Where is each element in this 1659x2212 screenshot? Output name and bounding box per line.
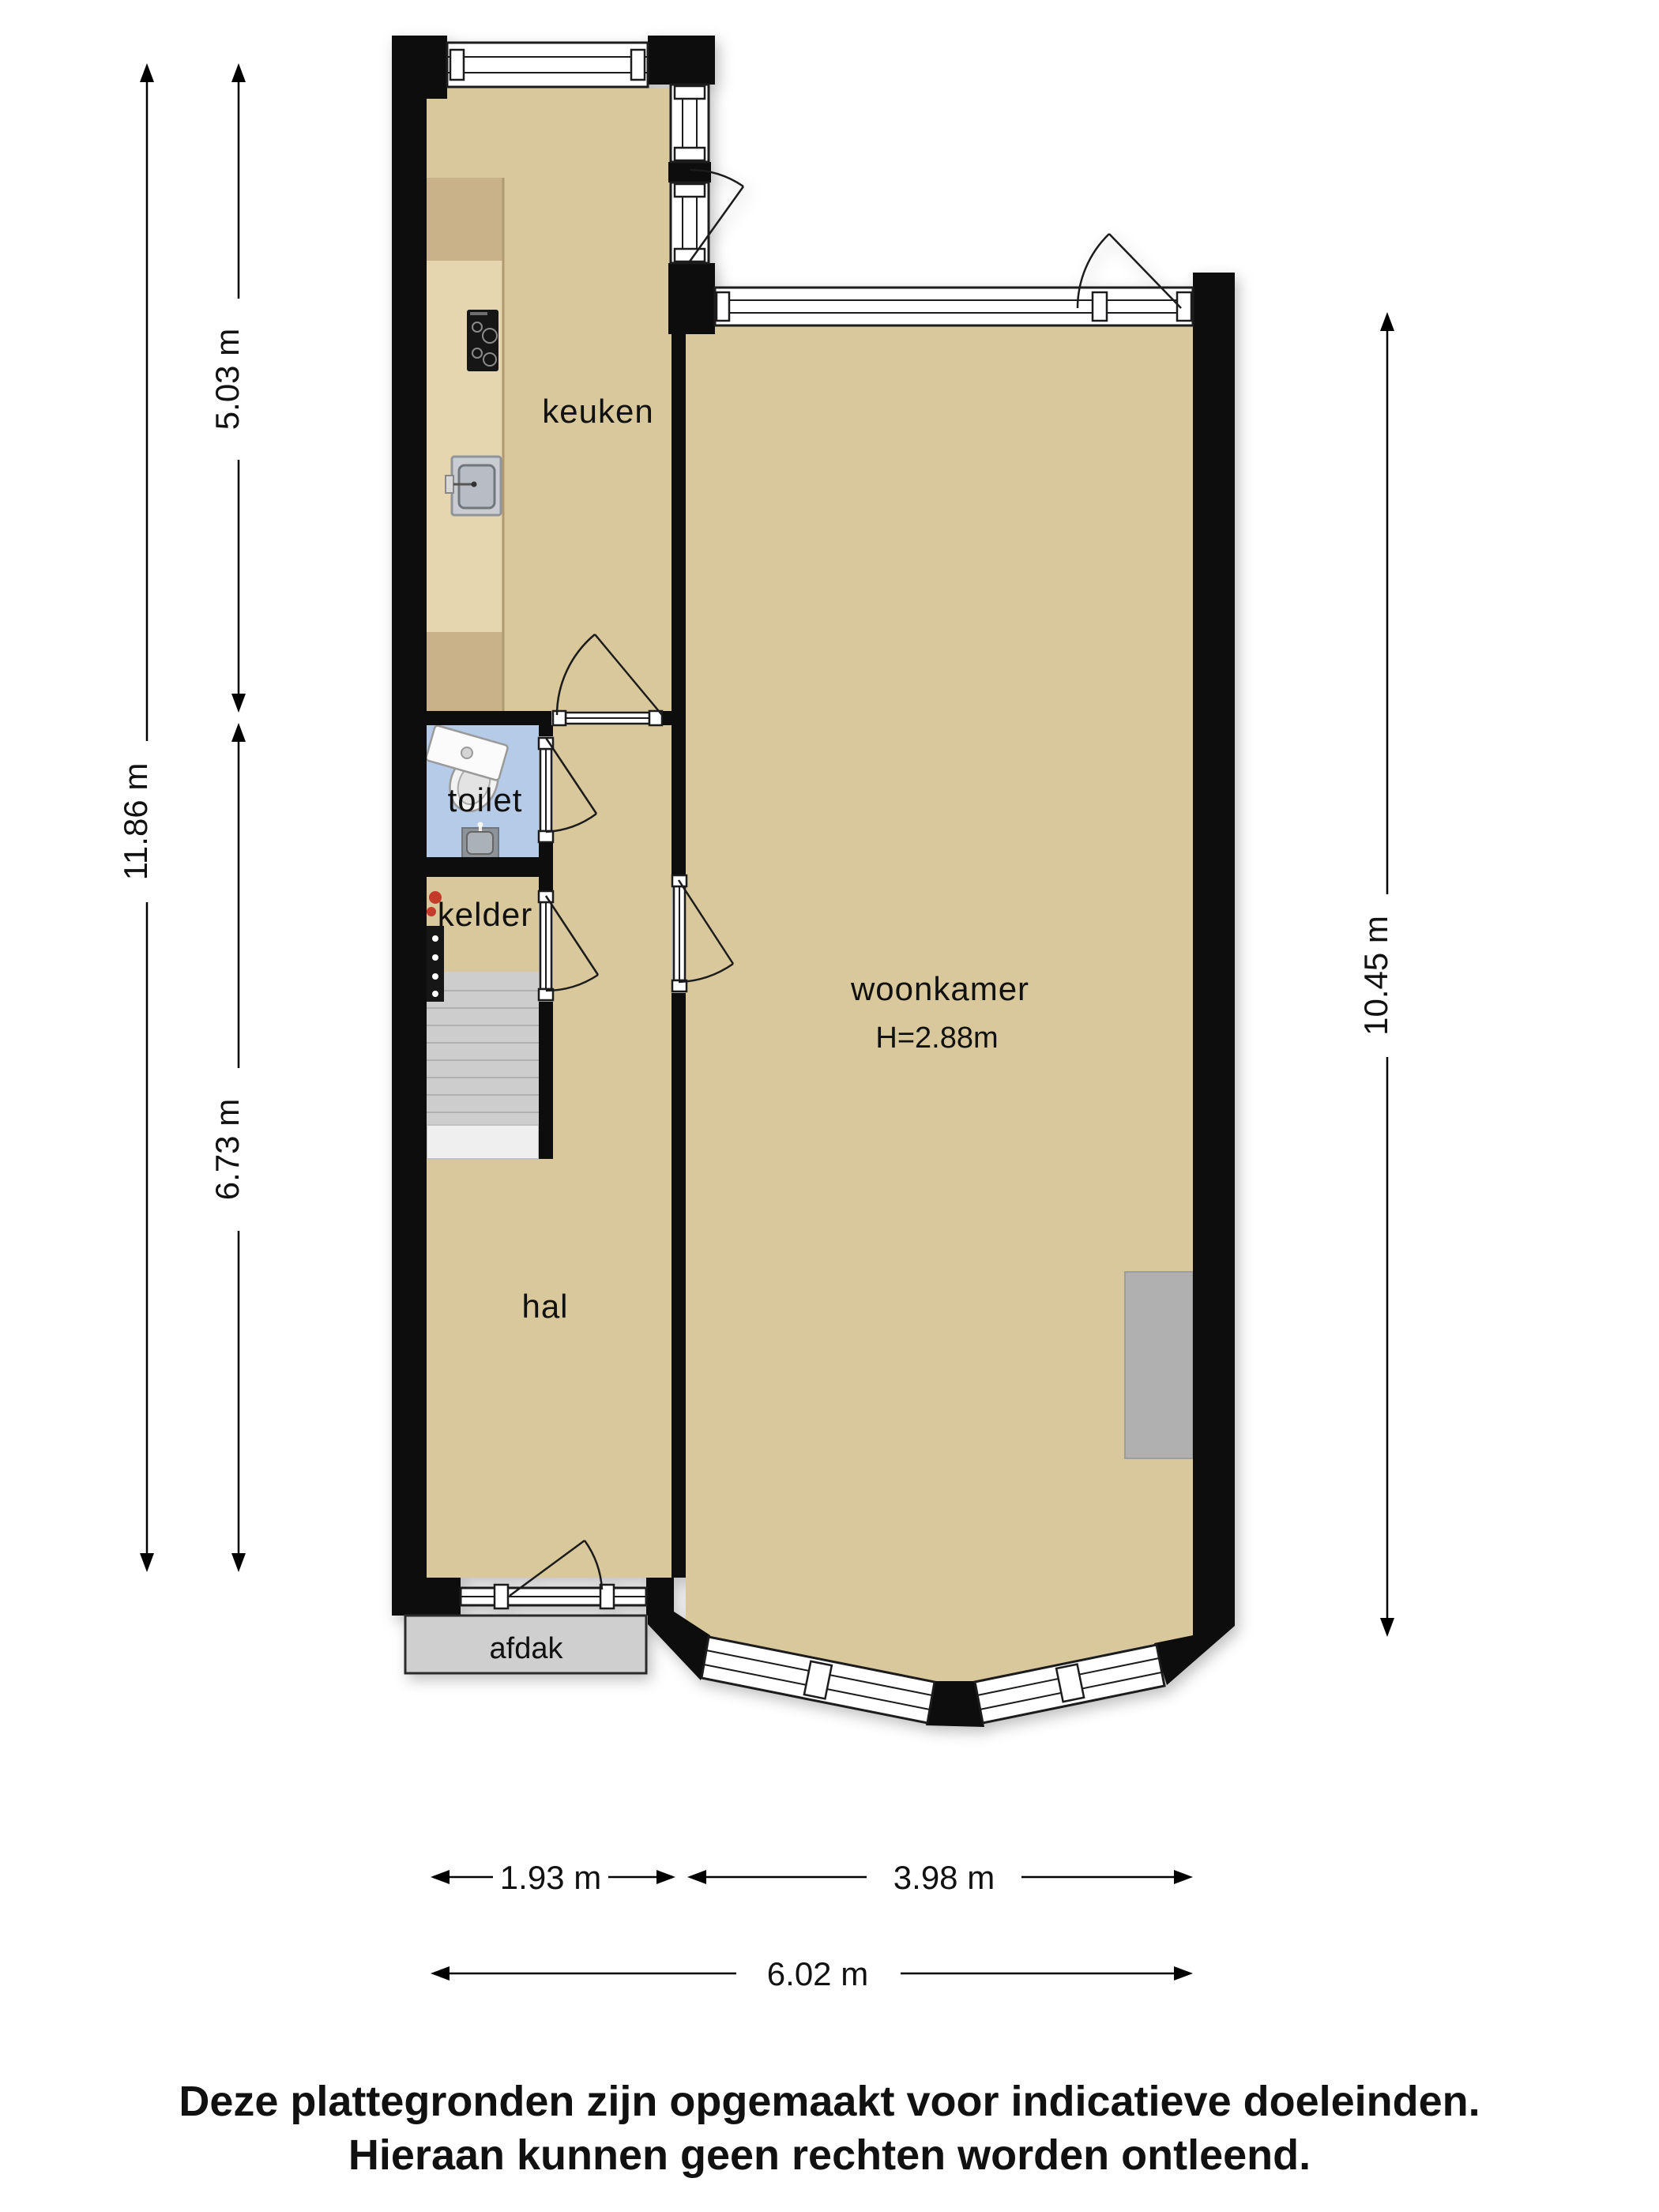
wall-toilet-cellar [427,857,553,877]
floor-plan-page: keuken toilet kelder hal woonkamer H=2.8… [0,0,1659,2212]
living-room-height-label: H=2.88m [875,1021,998,1055]
kitchen-counter [427,178,503,711]
hall-label: hal [521,1288,568,1325]
footer-line-2: Hieraan kunnen geen rechten worden ontle… [348,2131,1311,2179]
dim-label-front-left: 1.93 m [500,1859,601,1896]
building [392,36,1235,1727]
living-room-label: woonkamer [850,970,1029,1007]
canopy-label: afdak [490,1632,564,1665]
cooktop [467,310,498,371]
dim-label-hall-depth: 6.73 m [209,1099,246,1200]
cellar-label: kelder [438,896,532,933]
wall-kitchen-toilet [427,711,551,725]
hand-basin [462,822,498,859]
red-valve-2 [427,907,436,916]
footer-line-1: Deze plattegronden zijn opgemaakt voor i… [179,2078,1480,2125]
dim-label-front-total: 6.02 m [767,1955,868,1992]
exterior-wall-right [1193,273,1235,1618]
corner-living-top-left [668,263,715,334]
front-window-band [461,1585,646,1608]
exterior-wall-left [392,36,427,1616]
corner-kitchen-top-left [392,36,447,99]
corner-front-left [392,1578,461,1616]
floor-plan-svg: keuken toilet kelder hal woonkamer H=2.8… [0,0,1659,2212]
kitchen-label: keuken [542,393,653,430]
kitchen-top-window [447,43,648,87]
kitchen-sink [446,457,501,515]
wall-hall-living-lower [671,993,686,1578]
dim-label-kitchen-depth: 5.03 m [209,329,246,430]
wall-kitchen-hall-stub [662,711,673,725]
mullion-kitchen-right [668,162,711,182]
cistern-button [461,747,472,758]
wall-toilet-corridor-top [539,725,553,736]
fireplace [1125,1272,1193,1458]
stairs-landing [427,1125,539,1159]
faucet-base [446,476,453,493]
toilet-label: toilet [448,781,523,818]
wall-stairs-corridor [539,1002,553,1159]
wall-hall-living-upper [671,332,686,875]
corner-kitchen-top-right [648,36,715,85]
living-room-top-window [715,288,1193,325]
dim-label-front-right: 3.98 m [893,1859,995,1896]
counter-segment-top [427,178,503,261]
dim-label-left-total: 11.86 m [117,763,154,881]
kitchen-right-window [671,85,709,162]
dim-label-living-depth: 10.45 m [1357,916,1394,1036]
corner-front-right [646,1578,674,1616]
counter-segment-bottom [427,632,503,711]
